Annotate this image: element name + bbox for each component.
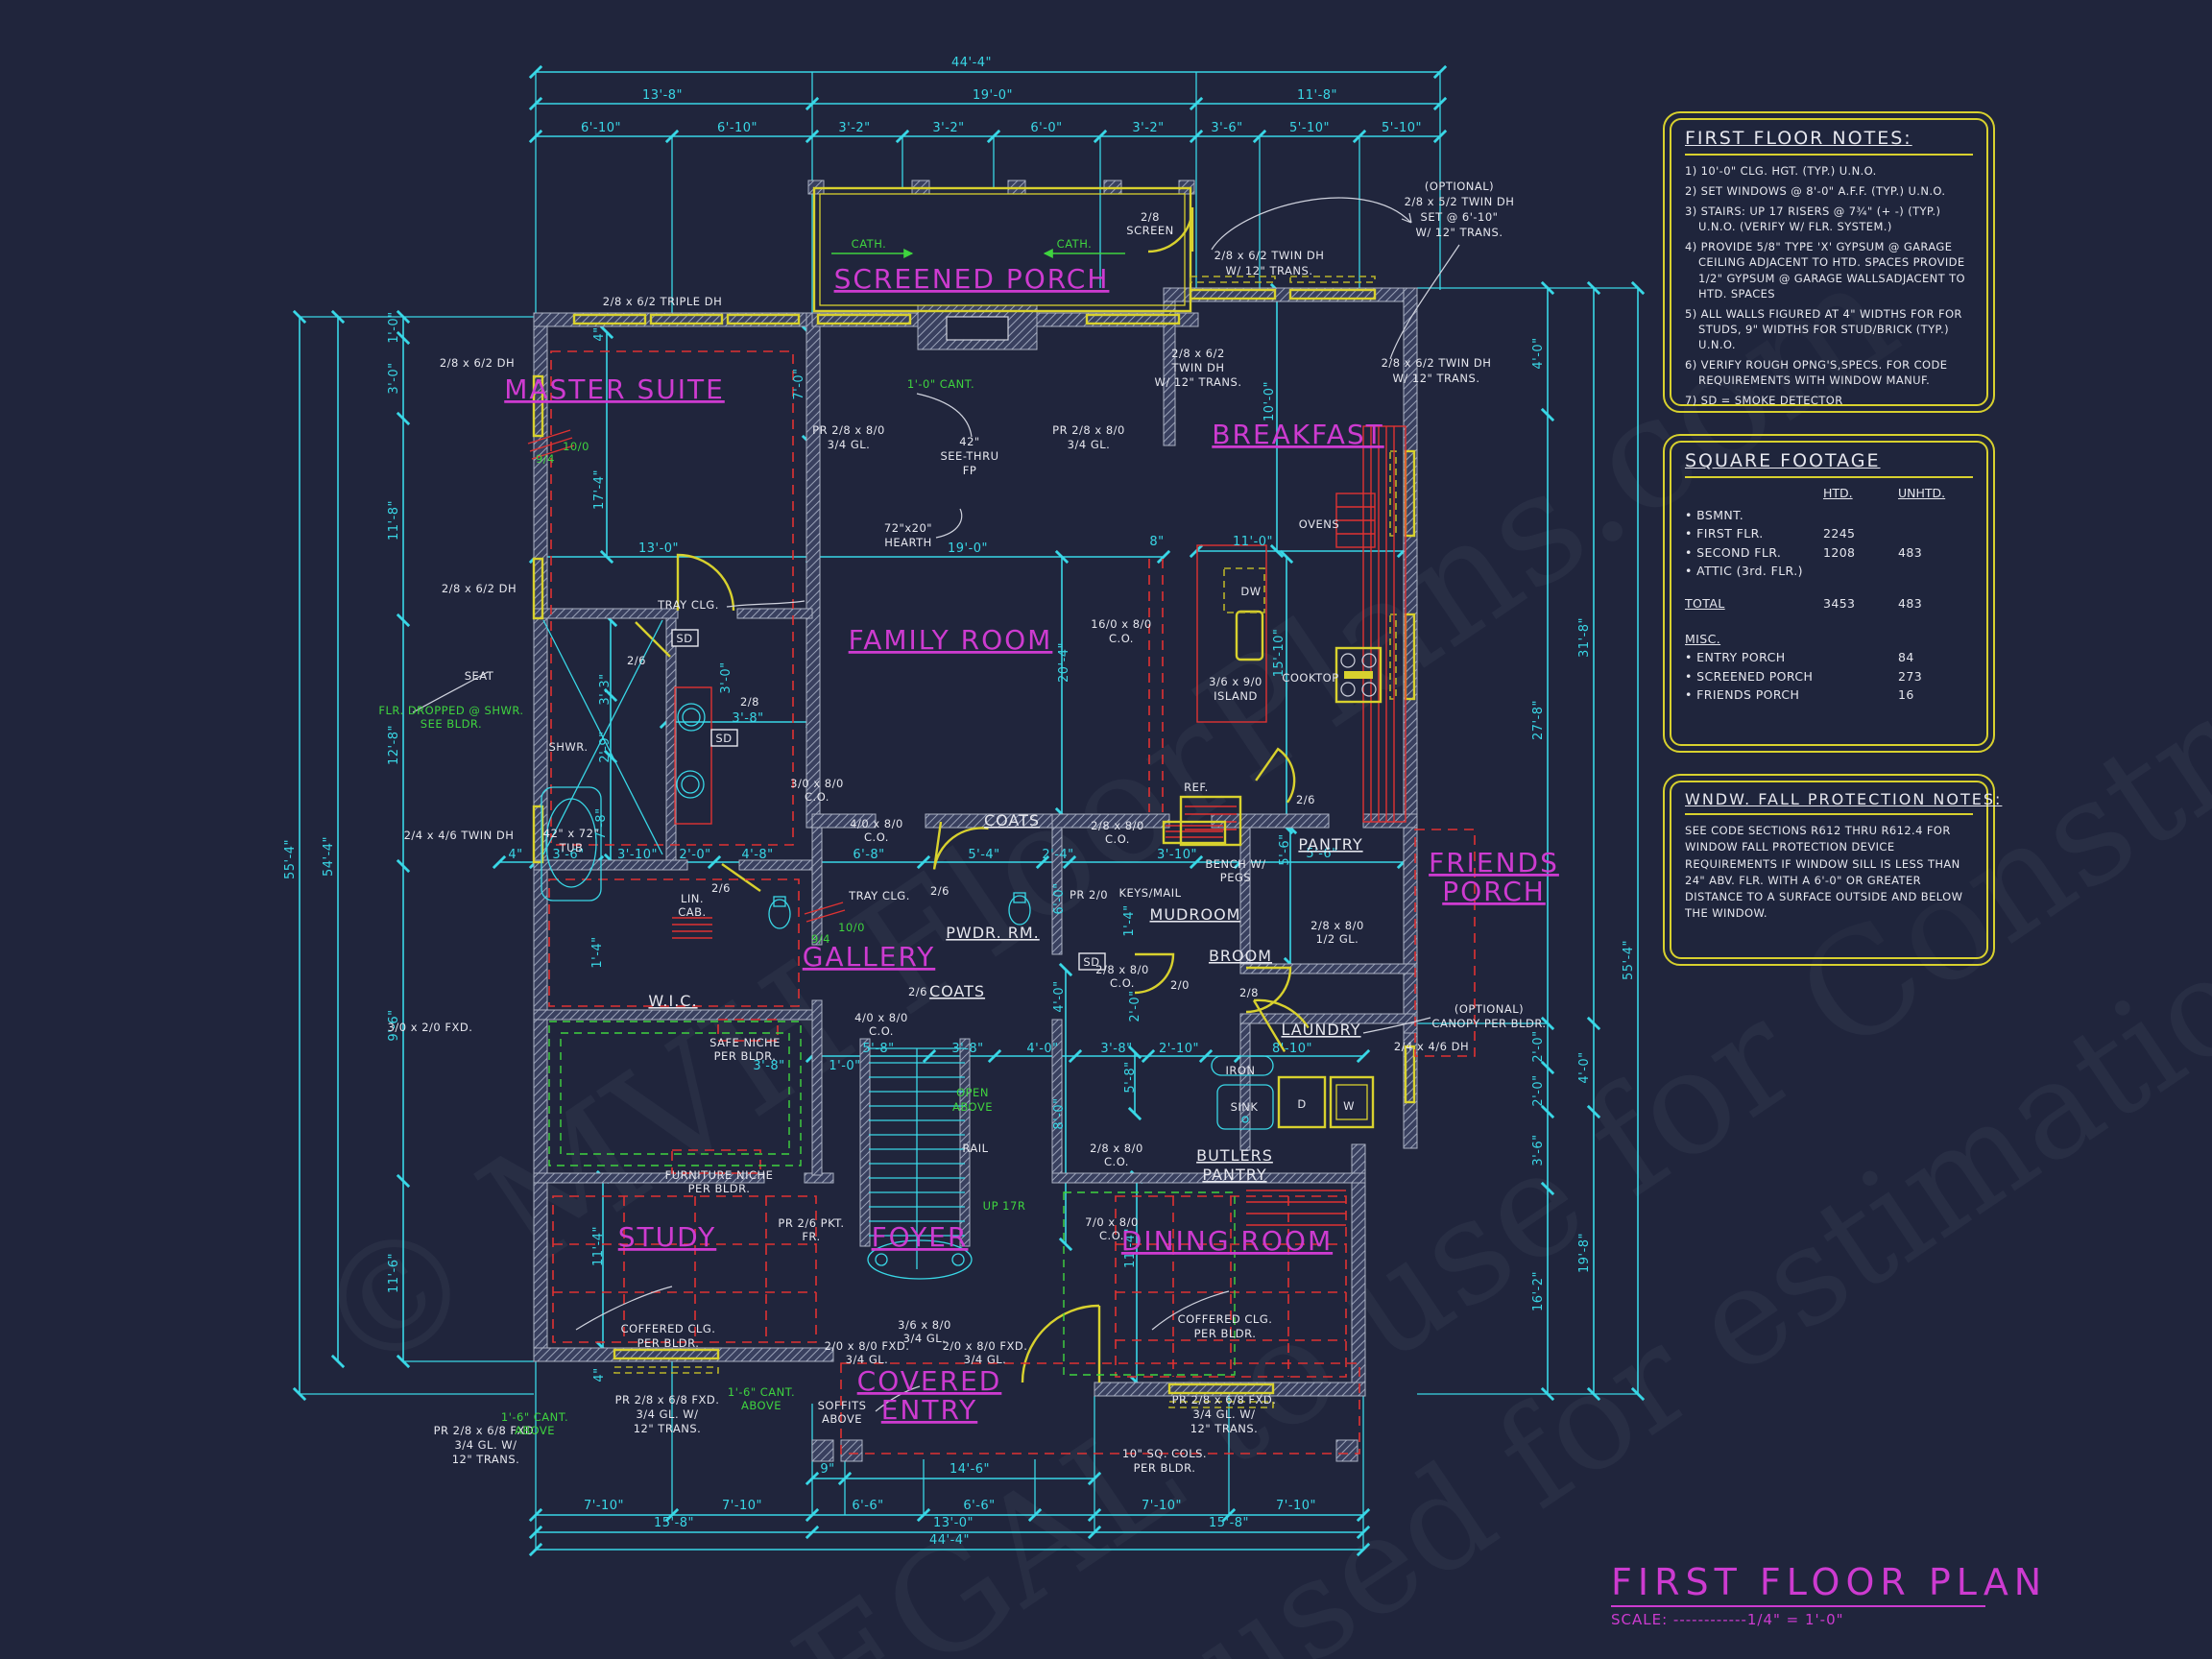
dimension-label: 15'-8": [1209, 1516, 1249, 1530]
dimension-label: 4'-0": [1531, 337, 1546, 369]
dimension-label: 4'-0": [1577, 1051, 1592, 1083]
annotation-label: SD: [676, 632, 692, 645]
smoke-detector-boxes: [672, 630, 1105, 970]
dimension-label: 12'-8": [387, 725, 401, 765]
dimension-label: 8'-10": [1272, 1042, 1312, 1056]
annotation-label: DW: [1240, 585, 1261, 598]
annotation-label: 2/8 x 5/2 TWIN DH: [1405, 195, 1515, 208]
sheet-scale: SCALE: ------------1/4" = 1'-0": [1611, 1611, 1985, 1628]
annotation-label: W/ 12" TRANS.: [1226, 264, 1313, 277]
dimension-label: 13'-8": [642, 88, 683, 103]
room-sub-label: MUDROOM: [1150, 905, 1241, 924]
room-label: STUDY: [618, 1221, 717, 1253]
room-label: FAMILY ROOM: [849, 624, 1053, 656]
room-sub-label: W.I.C.: [648, 992, 697, 1010]
room-sub-label: PWDR. RM.: [946, 924, 1040, 942]
dimension-label: 3'-10": [1157, 848, 1197, 862]
dimension-label: 15'-10": [1272, 629, 1286, 678]
dimension-label: 6'-6": [963, 1499, 995, 1513]
dimension-label: 11'-0": [1233, 535, 1273, 549]
room-label: FRIENDS: [1429, 847, 1559, 878]
annotation-label: PER BLDR.: [1194, 1327, 1257, 1340]
annotation-label: 3/4 GL.: [846, 1353, 889, 1366]
annotation-label: OVENS: [1299, 517, 1339, 531]
dimension-label: 2'-0": [1531, 1074, 1546, 1106]
annotation-label: 2/8 x 8/0: [1090, 1142, 1143, 1155]
annotation-label: 2/8: [1239, 986, 1259, 999]
sqft-misc-header: MISC.: [1685, 630, 1973, 648]
annotation-label: 72"x20": [884, 521, 932, 535]
annotation-label: 2/8: [740, 695, 759, 709]
green-note-label: 1'-6" CANT.: [728, 1385, 795, 1399]
green-note-label: ABOVE: [952, 1100, 993, 1114]
annotation-label: 3/4 GL. W/: [1192, 1407, 1255, 1421]
annotation-label: IRON: [1225, 1064, 1255, 1077]
square-footage-box: SQUARE FOOTAGE HTD. UNHTD. BSMNT. FIRST …: [1663, 434, 1995, 753]
dimension-label: 2'-4": [1042, 848, 1073, 862]
sqft-row-unhtd: [1898, 506, 1973, 524]
green-note-label: OPEN: [956, 1086, 989, 1099]
dimension-label: 19'-0": [948, 541, 988, 556]
sqft-row-htd: 1208: [1823, 543, 1898, 562]
dimension-label: 8": [1149, 535, 1164, 549]
dimension-label: 7'-10": [584, 1499, 624, 1513]
note-item: 4) PROVIDE 5/8" TYPE 'X' GYPSUM @ GARAGE…: [1685, 239, 1973, 301]
note-item: 6) VERIFY ROUGH OPNG'S,SPECS. FOR CODE R…: [1685, 357, 1973, 388]
dimension-label: 3'-3": [598, 673, 613, 705]
dimension-label: 11'-4": [591, 1226, 606, 1266]
annotation-label: PER BLDR.: [1134, 1461, 1196, 1475]
annotation-label: SOFFITS: [818, 1399, 867, 1412]
green-note-label: CATH.: [1057, 237, 1093, 251]
sqft-row: ATTIC (3rd. FLR.): [1685, 562, 1973, 580]
dimension-label: 4'-8": [741, 848, 773, 862]
dimension-label: 5'-10": [1289, 121, 1330, 135]
sqft-row-unhtd: [1898, 524, 1973, 542]
annotation-label: (OPTIONAL): [1425, 180, 1494, 193]
annotation-label: SAFE NICHE: [709, 1036, 781, 1049]
annotation-label: W/ 12" TRANS.: [1393, 372, 1480, 385]
annotation-label: LIN.: [681, 892, 704, 905]
green-note-label: ABOVE: [741, 1399, 781, 1412]
sqft-misc-row-value: 273: [1898, 667, 1973, 685]
sqft-row-htd: [1823, 506, 1898, 524]
annotation-label: FURNITURE NICHE: [665, 1168, 774, 1182]
annotation-label: D: [1297, 1097, 1306, 1111]
annotation-label: 2/8 x 8/0: [1095, 963, 1149, 976]
annotation-label: 2/6: [930, 884, 950, 898]
annotation-label: PEGS: [1220, 871, 1251, 884]
annotation-label: 2/8 x 6/2: [1171, 347, 1225, 360]
annotation-label: PER BLDR.: [688, 1182, 751, 1195]
annotation-label: C.O.: [1110, 976, 1135, 990]
dimension-label: 6'-10": [717, 121, 757, 135]
dimension-label: 3'-0": [387, 362, 401, 394]
dimension-label: 16'-2": [1531, 1271, 1546, 1311]
annotation-label: C.O.: [864, 830, 889, 844]
dimension-label: 15'-8": [654, 1516, 694, 1530]
dimension-label: 1'-4": [590, 936, 605, 968]
annotation-label: 2/6: [711, 881, 731, 895]
annotation-label: 2/8 x 6/2 TRIPLE DH: [603, 295, 722, 308]
annotation-label: COFFERED CLG.: [621, 1322, 716, 1335]
sqft-row: SECOND FLR. 1208 483: [1685, 543, 1973, 562]
annotation-label: 4/0 x 8/0: [850, 817, 903, 830]
sqft-row-unhtd: [1898, 562, 1973, 580]
annotation-label: CAB.: [678, 905, 706, 919]
note-item: 5) ALL WALLS FIGURED AT 4" WIDTHS FOR FO…: [1685, 306, 1973, 352]
annotation-label: 2/8 x 6/2 DH: [442, 582, 517, 595]
green-note-label: SEE BLDR.: [421, 717, 482, 731]
room-label: SCREENED PORCH: [834, 263, 1110, 295]
dimension-label: 2'-10": [1159, 1042, 1199, 1056]
fall-protection-body: SEE CODE SECTIONS R612 THRU R612.4 FOR W…: [1685, 823, 1973, 923]
floor-plan-sheet: © MVH FloorPlans.com ILLEGAL to use for …: [0, 0, 2212, 1659]
room-sub-label: BROOM: [1209, 947, 1272, 965]
annotation-label: W/ 12" TRANS.: [1416, 226, 1503, 239]
green-note-label: 9/4: [536, 452, 555, 466]
room-sub-label: PANTRY: [1298, 835, 1362, 854]
annotation-label: KEYS/MAIL: [1118, 886, 1181, 900]
annotation-label: PER BLDR.: [637, 1336, 700, 1350]
dimension-label: 4": [508, 848, 522, 862]
annotation-label: TWIN DH: [1170, 361, 1224, 374]
dimension-label: 5'-8": [1123, 1061, 1138, 1093]
annotation-label: 2/8 x 6/2 DH: [440, 356, 515, 370]
dimension-label: 6'-6": [852, 1499, 883, 1513]
room-label: FOYER: [872, 1221, 969, 1253]
dimension-label: 10'-0": [1262, 381, 1277, 421]
dimension-label: 3'-6": [1531, 1134, 1546, 1166]
dimension-label: 11'-8": [387, 500, 401, 541]
sqft-misc-label: MISC.: [1685, 630, 1973, 648]
annotation-label: SET @ 6'-10": [1421, 210, 1499, 224]
annotation-label: RAIL: [962, 1142, 988, 1155]
dimension-label: 5'-8": [862, 1042, 894, 1056]
annotation-label: TUB: [559, 841, 584, 854]
annotation-label: 2/6: [1296, 793, 1315, 806]
dimension-label: 3'-2": [1132, 121, 1164, 135]
annotation-label: 3/4 GL.: [1068, 438, 1111, 451]
annotation-label: C.O.: [805, 790, 829, 804]
sqft-total-htd: 3453: [1823, 594, 1898, 613]
dimension-label: 3'-2": [932, 121, 964, 135]
sqft-misc-row-label: SCREENED PORCH: [1685, 667, 1823, 685]
sqft-row-label: BSMNT.: [1685, 506, 1823, 524]
annotation-label: 2/8 x 8/0: [1310, 919, 1364, 932]
dimension-label: 19'-8": [1577, 1233, 1592, 1273]
dimension-label: 3'-2": [838, 121, 870, 135]
sqft-total-unhtd: 483: [1898, 594, 1973, 613]
sqft-row-label: FIRST FLR.: [1685, 524, 1823, 542]
annotation-label: 2/8: [1141, 210, 1160, 224]
annotation-label: W/ 12" TRANS.: [1155, 375, 1242, 389]
annotation-label: PR 2/8 x 6/8 FXD.: [1172, 1393, 1277, 1407]
annotation-label: COFFERED CLG.: [1178, 1312, 1273, 1326]
dimension-label: 7'-10": [722, 1499, 762, 1513]
dimension-label: 1'-0": [387, 311, 401, 343]
annotation-label: PR 2/0: [1070, 888, 1108, 902]
annotation-label: W: [1343, 1099, 1355, 1113]
sqft-total-label: TOTAL: [1685, 594, 1823, 613]
annotation-label: SEAT: [465, 669, 494, 683]
annotation-label: REF.: [1184, 781, 1209, 794]
annotation-label: 12" TRANS.: [452, 1453, 520, 1466]
annotation-label: (OPTIONAL): [1455, 1002, 1524, 1016]
dimension-label: 6'-0": [1030, 121, 1062, 135]
sqft-title: SQUARE FOOTAGE: [1685, 450, 1973, 478]
annotation-label: C.O.: [1109, 632, 1134, 645]
sqft-total-row: TOTAL 3453 483: [1685, 594, 1973, 613]
room-label: COVERED: [857, 1365, 1002, 1397]
annotation-label: 2/8 x 6/2 TWIN DH: [1214, 249, 1325, 262]
sqft-row: BSMNT.: [1685, 506, 1973, 524]
annotation-label: SINK: [1231, 1100, 1259, 1114]
annotation-label: 42": [959, 435, 979, 448]
annotation-label: PR 2/8 x 6/8 FXD.: [615, 1393, 720, 1407]
green-note-label: 1'-0" CANT.: [907, 377, 974, 391]
annotation-label: 2/6: [627, 654, 646, 667]
green-note-label: 10/0: [563, 440, 589, 453]
dimension-label: 1'-4": [1122, 904, 1137, 936]
see-thru-fireplace: [947, 317, 1008, 340]
dimension-label: 3'-8": [1100, 1042, 1132, 1056]
dimension-label: 55'-4": [1622, 940, 1636, 980]
sqft-col-unhtd: UNHTD.: [1898, 486, 1973, 500]
annotation-label: 10" SQ. COLS.: [1122, 1447, 1207, 1460]
dimension-label: 20'-4": [1057, 642, 1071, 683]
room-label: ENTRY: [881, 1394, 978, 1426]
sqft-row-htd: 2245: [1823, 524, 1898, 542]
dimension-label: 11'-6": [387, 1253, 401, 1293]
annotation-label: 2/8 x 8/0: [1091, 819, 1144, 832]
dimension-label: 2'-0": [1531, 1030, 1546, 1062]
sqft-row: FIRST FLR. 2245: [1685, 524, 1973, 542]
dimension-label: 44'-4": [951, 56, 992, 70]
note-item: 2) SET WINDOWS @ 8'-0" A.F.F. (TYP.) U.N…: [1685, 183, 1973, 199]
annotation-label: 3/4 GL. W/: [636, 1407, 698, 1421]
annotation-label: HEARTH: [884, 536, 932, 549]
annotation-label: 3/0 x 8/0: [790, 777, 844, 790]
dimension-label: 17'-4": [592, 469, 607, 510]
note-item: 7) SD = SMOKE DETECTOR: [1685, 393, 1973, 408]
annotation-label: TRAY CLG.: [848, 889, 910, 902]
annotation-label: PER BLDR.: [714, 1049, 777, 1063]
room-label: MASTER SUITE: [504, 373, 725, 405]
annotation-label: 42" x 72": [543, 827, 599, 840]
annotation-label: PR 2/8 x 8/0: [812, 423, 885, 437]
sqft-row-htd: [1823, 562, 1898, 580]
annotation-label: 16/0 x 8/0: [1091, 617, 1151, 631]
dimension-label: 54'-4": [322, 836, 336, 877]
annotation-label: SCREEN: [1126, 224, 1173, 237]
sqft-misc-row: FRIENDS PORCH 16: [1685, 685, 1973, 704]
fall-protection-title: WNDW. FALL PROTECTION NOTES:: [1685, 790, 1973, 815]
annotation-label: SEE-THRU: [940, 449, 998, 463]
room-label: PORCH: [1442, 876, 1546, 907]
dimension-label: 13'-0": [638, 541, 679, 556]
room-label: GALLERY: [803, 941, 936, 973]
dimension-label: 4'-0": [1026, 1042, 1058, 1056]
dimension-label: 2'-9": [598, 731, 613, 762]
dimension-label: 13'-0": [933, 1516, 974, 1530]
annotation-label: FP: [963, 464, 977, 477]
annotation-label: ISLAND: [1214, 689, 1258, 703]
green-note-label: FLR. DROPPED @ SHWR.: [378, 704, 523, 717]
annotation-label: C.O.: [1105, 832, 1130, 846]
annotation-label: SHWR.: [548, 740, 588, 754]
sheet-title-block: FIRST FLOOR PLAN SCALE: ------------1/4"…: [1611, 1561, 1985, 1628]
dimension-label: 2'-0": [1128, 990, 1142, 1022]
dimension-label: 5'-6": [1278, 833, 1292, 865]
notes-title: FIRST FLOOR NOTES:: [1685, 128, 1973, 156]
sqft-row-label: SECOND FLR.: [1685, 543, 1823, 562]
dimension-label: 5'-4": [968, 848, 999, 862]
sqft-row-label: ATTIC (3rd. FLR.): [1685, 562, 1823, 580]
annotation-label: C.O.: [869, 1024, 894, 1038]
sqft-misc-row-label: FRIENDS PORCH: [1685, 685, 1823, 704]
annotation-label: 3/4 GL.: [828, 438, 871, 451]
annotation-label: TRAY CLG.: [657, 598, 719, 612]
dimension-label: 3'-10": [617, 848, 658, 862]
dimension-label: 2'-0": [679, 848, 710, 862]
sqft-misc-row: ENTRY PORCH 84: [1685, 648, 1973, 666]
sqft-row-unhtd: 483: [1898, 543, 1973, 562]
green-note-label: 10/0: [838, 921, 865, 934]
sqft-header: HTD. UNHTD.: [1685, 486, 1973, 500]
dimension-label: 3'-8": [732, 711, 763, 726]
green-note-label: UP 17R: [983, 1199, 1026, 1213]
dimension-label: 4": [592, 326, 607, 341]
annotation-label: 2/6: [908, 985, 927, 998]
dimension-label: 4": [592, 1367, 607, 1382]
annotation-label: 3/4 GL.: [964, 1353, 1007, 1366]
sqft-misc-row-label: ENTRY PORCH: [1685, 648, 1823, 666]
note-item: 1) 10'-0" CLG. HGT. (TYP.) U.N.O.: [1685, 163, 1973, 179]
annotation-label: ABOVE: [822, 1412, 862, 1426]
dimension-label: 55'-4": [283, 839, 298, 879]
dimension-label: 6'-10": [581, 121, 621, 135]
annotation-label: PR 2/8 x 8/0: [1052, 423, 1125, 437]
annotation-label: FR.: [802, 1230, 820, 1243]
dimension-label: 4'-0": [1052, 980, 1067, 1012]
dimension-label: 5'-10": [1382, 121, 1422, 135]
annotation-label: 2/4 x 4/6 TWIN DH: [404, 829, 515, 842]
sqft-col-htd: HTD.: [1823, 486, 1898, 500]
annotation-label: 3/4 GL. W/: [454, 1438, 517, 1452]
annotation-label: SD: [715, 732, 732, 745]
annotation-label: BENCH W/: [1205, 857, 1265, 871]
dimension-label: 9": [820, 1462, 834, 1477]
room-sub-label: BUTLERS: [1196, 1146, 1273, 1165]
annotation-label: PR 2/6 PKT.: [778, 1216, 844, 1230]
sheet-title: FIRST FLOOR PLAN: [1611, 1561, 1985, 1607]
dimension-label: 27'-8": [1531, 700, 1546, 740]
annotation-label: 3/0 x 2/0 FXD.: [388, 1021, 473, 1034]
fall-protection-notes-box: WNDW. FALL PROTECTION NOTES: SEE CODE SE…: [1663, 774, 1995, 966]
annotation-label: 1/2 GL.: [1316, 932, 1359, 946]
annotation-label: 12" TRANS.: [634, 1422, 702, 1435]
room-sub-label: COATS: [929, 982, 985, 1000]
dimension-label: 7'-10": [1142, 1499, 1182, 1513]
first-floor-notes-box: FIRST FLOOR NOTES: 1) 10'-0" CLG. HGT. (…: [1663, 111, 1995, 413]
dimension-label: 1'-0": [829, 1059, 860, 1073]
green-note-label: CATH.: [852, 237, 887, 251]
room-label: DINING ROOM: [1121, 1225, 1333, 1257]
dimension-label: 31'-8": [1577, 617, 1592, 658]
dimension-label: 11'-8": [1297, 88, 1337, 103]
annotation-label: 2/0: [1170, 978, 1190, 992]
room-label: BREAKFAST: [1212, 419, 1383, 450]
note-item: 3) STAIRS: UP 17 RISERS @ 7¾" (+ -) (TYP…: [1685, 204, 1973, 234]
annotation-label: 12" TRANS.: [1190, 1422, 1259, 1435]
green-note-label: ABOVE: [515, 1424, 555, 1437]
dimension-label: 8'-0": [1052, 1097, 1067, 1129]
dimension-label: 3'-6": [1211, 121, 1242, 135]
sqft-misc-row-value: 16: [1898, 685, 1973, 704]
room-sub-label: COATS: [984, 811, 1040, 829]
sqft-misc-row-value: 84: [1898, 648, 1973, 666]
annotation-label: 4/0 x 8/0: [854, 1011, 908, 1024]
annotation-label: C.O.: [1104, 1155, 1129, 1168]
annotation-label: 2/8 x 6/2 TWIN DH: [1382, 356, 1492, 370]
dimension-label: 14'-6": [950, 1462, 990, 1477]
room-sub-label: LAUNDRY: [1281, 1021, 1360, 1039]
annotation-label: 2/4 x 4/6 DH: [1394, 1040, 1469, 1053]
annotation-label: 3/6 x 8/0: [898, 1318, 951, 1332]
annotation-label: CANOPY PER BLDR.: [1431, 1017, 1546, 1030]
sqft-misc-row: SCREENED PORCH 273: [1685, 667, 1973, 685]
dimension-label: 6'-8": [853, 848, 884, 862]
annotation-label: 2/0 x 8/0 FXD.: [825, 1339, 910, 1353]
annotation-label: COOKTOP: [1282, 671, 1338, 685]
annotation-label: 2/0 x 8/0 FXD.: [943, 1339, 1028, 1353]
dimension-label: 19'-0": [973, 88, 1013, 103]
green-note-label: 1'-6" CANT.: [501, 1410, 568, 1424]
dimension-label: 6'-0": [1052, 882, 1067, 914]
room-sub-label: PANTRY: [1202, 1166, 1266, 1184]
dimension-label: 7'-10": [1276, 1499, 1316, 1513]
dimension-label: 3'-8": [951, 1042, 983, 1056]
dimension-label: 44'-4": [929, 1533, 970, 1548]
dimension-label: 3'-0": [719, 661, 733, 693]
dimension-label: 7'-0": [792, 368, 806, 399]
annotation-label: 3/6 x 9/0: [1209, 675, 1262, 688]
